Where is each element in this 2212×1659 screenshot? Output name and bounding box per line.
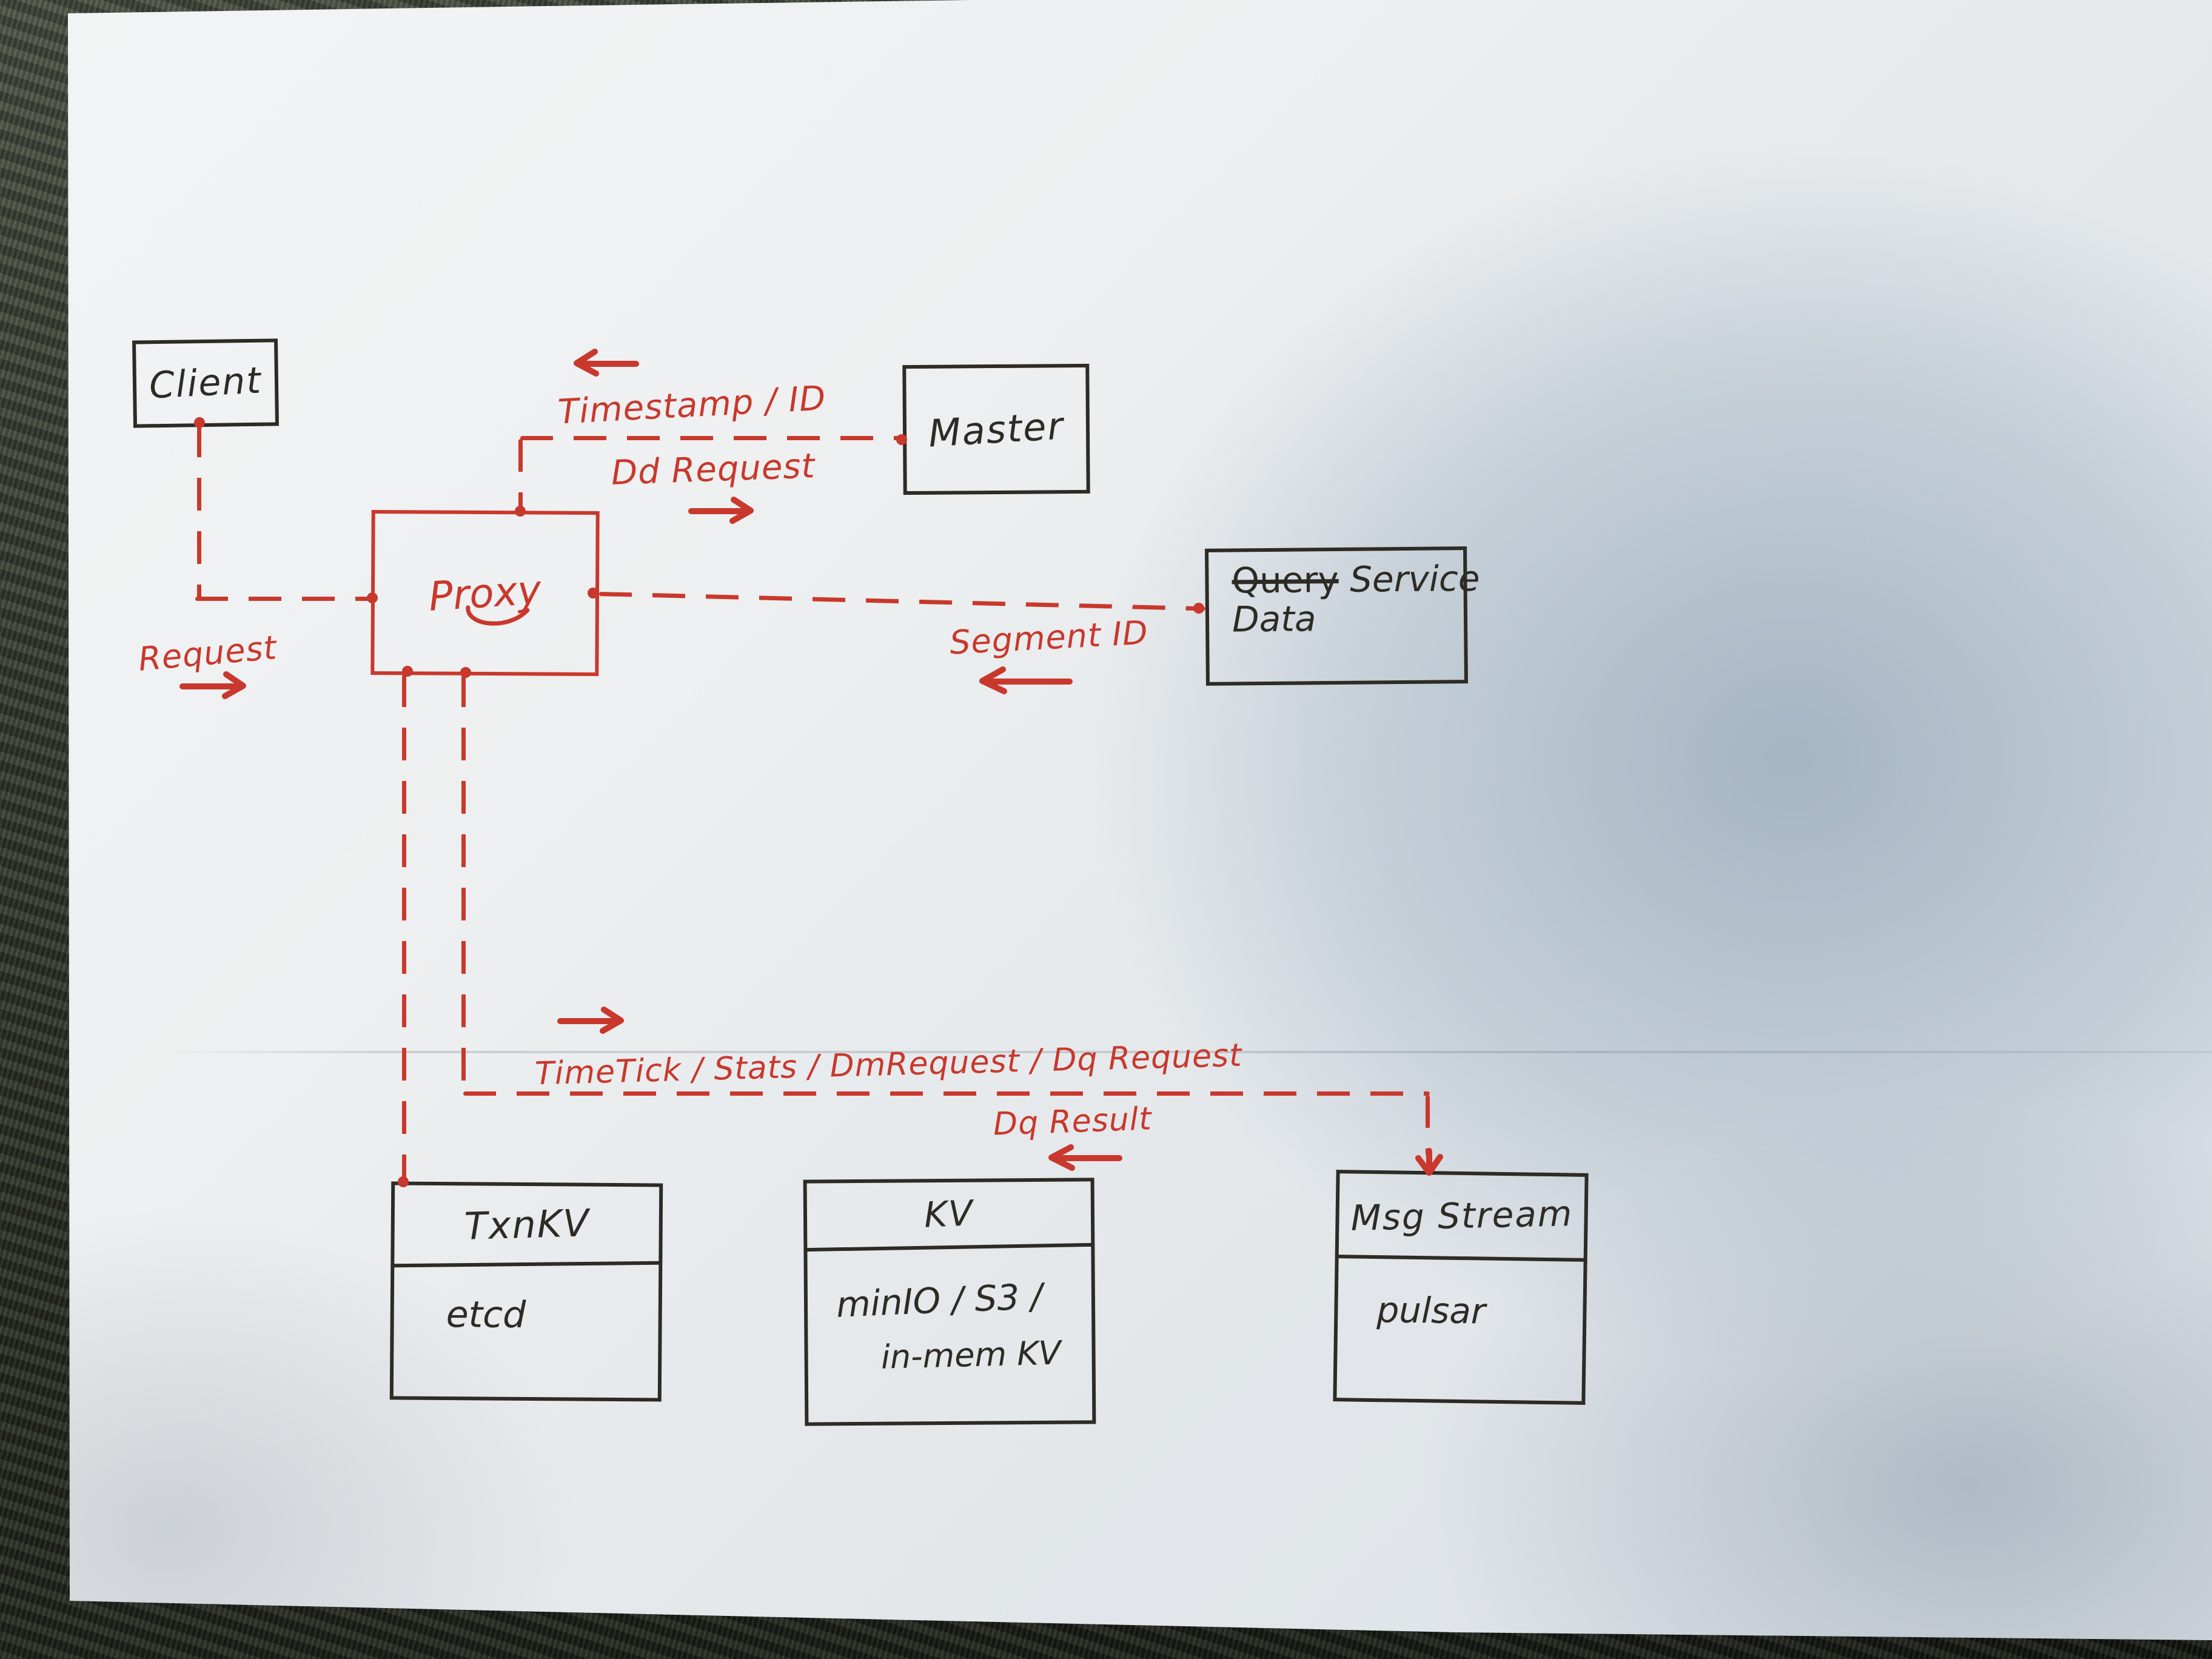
msgstream-body: pulsar (1338, 1255, 1584, 1333)
node-txnkv: TxnKV etcd (390, 1181, 663, 1401)
data-service-struck-word: Query (1232, 559, 1339, 602)
node-data-service: Query Service Data (1205, 546, 1468, 686)
edge-client-horizontal (195, 597, 372, 601)
timestamp-id-label: Timestamp / ID (557, 378, 827, 432)
dd-request-label: Dd Request (611, 446, 816, 493)
edge-txnkv-vertical (402, 674, 406, 1181)
data-service-line2: Data (1232, 598, 1464, 639)
edge-dataservice-horizontal (599, 592, 1205, 611)
client-label: Client (149, 360, 263, 407)
node-proxy: Proxy (370, 510, 599, 676)
master-label: Master (927, 403, 1065, 455)
txnkv-header: TxnKV (463, 1201, 590, 1248)
node-msgstream: Msg Stream pulsar (1333, 1170, 1588, 1405)
arrow-down-icon (1414, 1150, 1444, 1175)
node-client: Client (132, 338, 279, 427)
data-service-word: Service (1350, 558, 1480, 600)
msgstream-header: Msg Stream (1350, 1193, 1574, 1239)
paper-sheet: Client Master Query Service Data TxnKV e… (0, 0, 2212, 1659)
timetick-label: TimeTick / Stats / DmRequest / Dq Reques… (534, 1037, 1242, 1093)
arrow-left-icon (573, 347, 641, 377)
edge-msgstream-vertical-1 (461, 674, 466, 1094)
txnkv-body: etcd (394, 1261, 659, 1337)
segment-id-label: Segment ID (949, 613, 1150, 662)
edge-master-vertical (518, 439, 523, 511)
arrow-left-icon (979, 663, 1074, 695)
dq-result-label: Dq Result (993, 1101, 1153, 1142)
node-master: Master (902, 364, 1090, 495)
kv-body-line1: minIO / S3 / (806, 1239, 1093, 1326)
arrow-right-icon (178, 668, 247, 700)
edge-msgstream-horizontal (463, 1091, 1430, 1096)
photo-of-paper-sketch: { "title": "Hand-drawn system architectu… (0, 0, 2212, 1659)
edge-msgstream-vertical-2 (1426, 1095, 1430, 1156)
proxy-flourish (466, 605, 532, 630)
kv-header: KV (923, 1192, 974, 1235)
dataservice-left-dot (1193, 603, 1204, 614)
proxy-right-port-dot (588, 588, 598, 598)
node-kv: KV minIO / S3 / in-mem KV (803, 1178, 1096, 1426)
txnkv-top-dot (398, 1176, 409, 1187)
edge-client-vertical (197, 424, 201, 599)
arrow-right-icon (686, 494, 754, 525)
master-left-arrow-dot (896, 434, 907, 445)
arrow-right-icon (555, 1004, 625, 1034)
edge-master-horizontal (520, 436, 901, 440)
kv-body-line2: in-mem KV (808, 1317, 1093, 1378)
arrow-left-icon (1048, 1142, 1124, 1171)
data-service-line1: Query Service (1232, 560, 1464, 600)
